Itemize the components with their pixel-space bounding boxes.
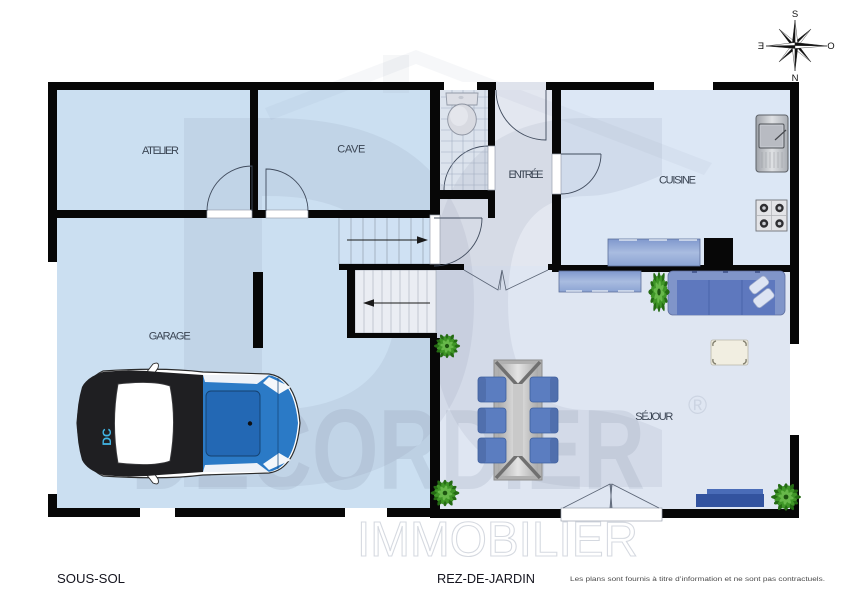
svg-text:ATELIER: ATELIER bbox=[142, 145, 179, 157]
svg-text:CAVE: CAVE bbox=[337, 144, 365, 156]
svg-text:S: S bbox=[792, 9, 798, 20]
svg-text:DC: DC bbox=[100, 428, 114, 446]
svg-text:O: O bbox=[827, 41, 834, 52]
svg-text:N: N bbox=[792, 73, 799, 84]
svg-text:®: ® bbox=[688, 390, 707, 420]
svg-text:CUISINE: CUISINE bbox=[659, 175, 696, 187]
svg-text:REZ-DE-JARDIN: REZ-DE-JARDIN bbox=[437, 571, 535, 586]
svg-text:ENTRÉE: ENTRÉE bbox=[509, 168, 544, 181]
svg-text:SÉJOUR: SÉJOUR bbox=[635, 410, 673, 423]
svg-text:Les plans sont fournis à titre: Les plans sont fournis à titre d’informa… bbox=[570, 576, 825, 583]
svg-text:GARAGE: GARAGE bbox=[149, 331, 191, 343]
svg-text:E: E bbox=[758, 41, 764, 52]
svg-text:SOUS-SOL: SOUS-SOL bbox=[57, 571, 125, 586]
